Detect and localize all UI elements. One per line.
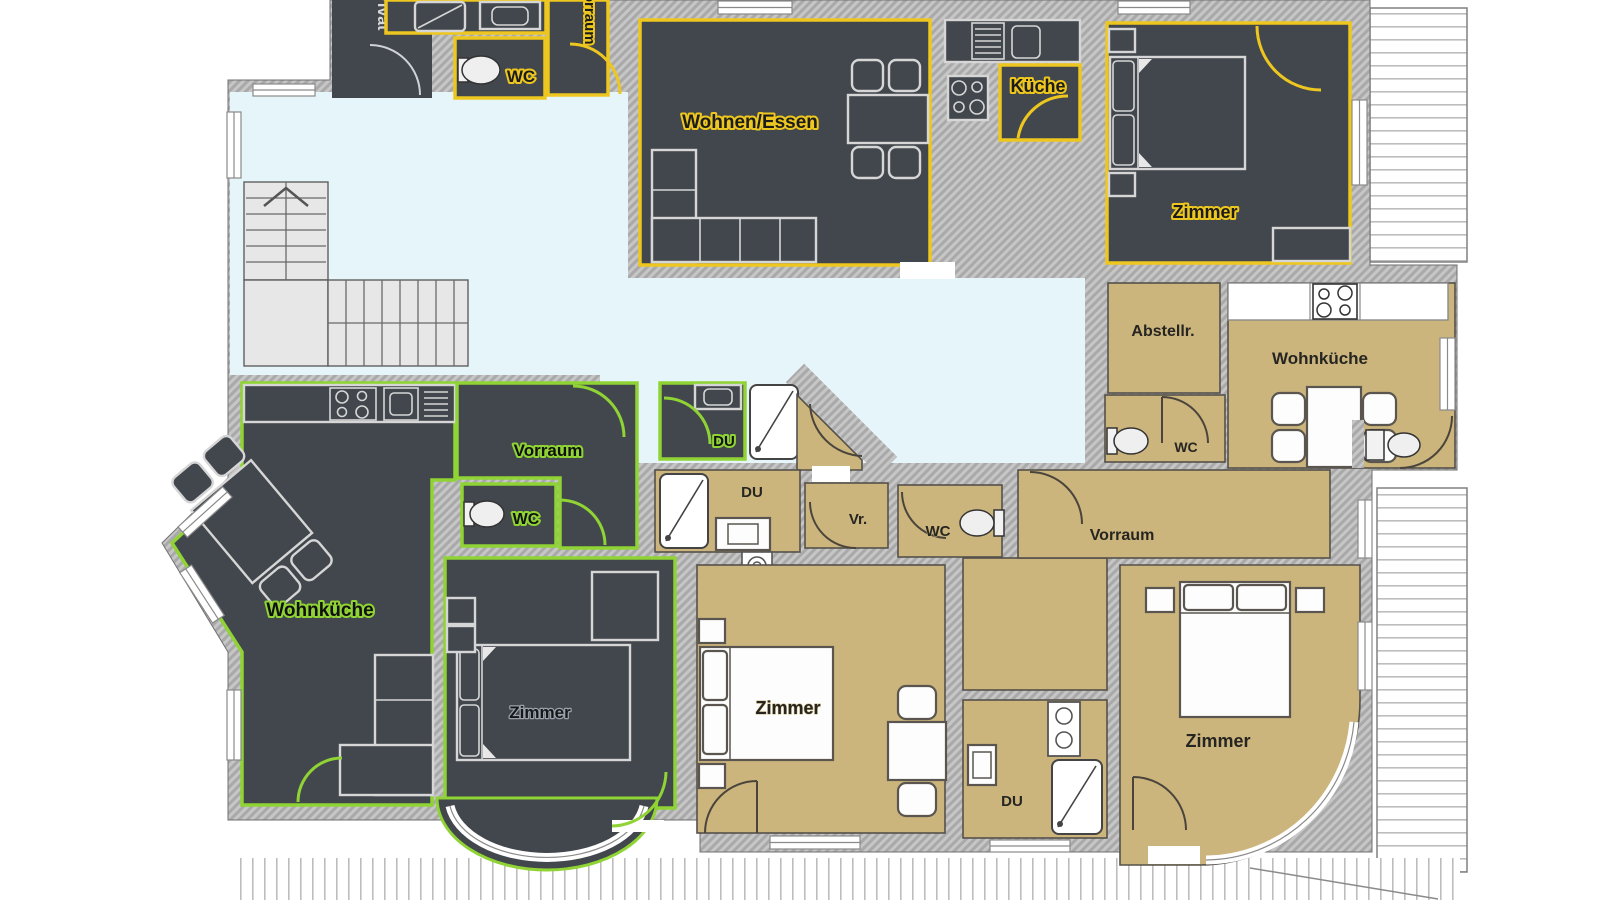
window [990, 840, 1070, 852]
shower [1052, 760, 1102, 834]
room-zimmer-top: Zimmer [1107, 23, 1350, 263]
window [1118, 1, 1190, 14]
room-label: Wohnküche [266, 600, 373, 621]
door-opening [1148, 846, 1200, 864]
room-label: Vr. [849, 511, 867, 528]
toilet [464, 501, 504, 527]
room-label: DU [741, 484, 763, 501]
wardrobe [592, 572, 658, 640]
room-label: Abstellr. [1131, 323, 1194, 340]
window [1358, 500, 1372, 558]
room-label: Zimmer [755, 698, 820, 718]
bed [1180, 582, 1290, 717]
floor-plan-page: Privat WC Vorraum [0, 0, 1600, 900]
appliance [1048, 702, 1080, 756]
door-opening [900, 262, 955, 279]
floor-plan-drawing: Privat WC Vorraum [0, 0, 1600, 900]
room-wohnkueche-right: Wohnküche [1228, 283, 1455, 468]
kitchen-counter [244, 385, 455, 422]
window [253, 84, 315, 96]
window [227, 112, 241, 178]
terrace-bottom [230, 858, 1460, 900]
sink [695, 385, 741, 409]
room-label: Küche [1010, 76, 1065, 96]
room-label: DU [713, 433, 735, 450]
terrace-top-right [1370, 8, 1467, 262]
sink [716, 518, 770, 550]
dishwasher [972, 23, 1004, 59]
kitchen-counter [1228, 283, 1448, 320]
shower [750, 385, 798, 459]
room-label: DU [1001, 793, 1023, 810]
room-wohnen-essen: Wohnen/Essen [640, 20, 930, 265]
room-label: Wohnküche [1272, 349, 1368, 368]
room-label: WC [1174, 439, 1197, 455]
terrace-right [1377, 488, 1467, 872]
room-du-left: DU [660, 383, 798, 459]
stove [1313, 284, 1357, 319]
toilet [458, 56, 500, 84]
room-label: Zimmer [1172, 202, 1237, 222]
room-du-right: DU [963, 700, 1107, 838]
window [718, 1, 792, 14]
window [227, 690, 241, 760]
toilet [1107, 428, 1148, 454]
sink [968, 745, 996, 785]
shower [660, 474, 708, 548]
room-label: Zimmer [509, 703, 571, 722]
room-label: WC [926, 523, 951, 540]
room-wohnkueche-left: Wohnküche [168, 383, 455, 805]
room-zimmer-left: Zimmer [437, 558, 675, 870]
room-label: WC [507, 67, 535, 86]
toilet [960, 510, 1004, 536]
window [1440, 338, 1455, 410]
room-wc-middle: WC [898, 485, 1004, 557]
room-abstellraum: Abstellr. [1108, 283, 1220, 393]
room-label: Vorraum [514, 441, 583, 460]
window [770, 836, 860, 849]
dining-table [848, 60, 928, 178]
door-opening [812, 466, 850, 482]
sink [480, 2, 540, 29]
bed [1110, 57, 1245, 169]
room-vorraum-top: Vorraum [548, 0, 620, 95]
room-zimmer-middle: Zimmer [697, 565, 946, 833]
room-label: Wohnen/Essen [682, 112, 818, 133]
room-label: WC [513, 511, 540, 528]
room-wc-right: WC [1105, 395, 1225, 462]
room-wc-top: WC [455, 38, 545, 98]
window [1358, 622, 1372, 690]
room-label: Zimmer [1185, 731, 1250, 751]
room-label: Vorraum [581, 0, 598, 45]
room-bath-top [386, 0, 546, 33]
stove [948, 76, 988, 120]
room-label: Vorraum [1090, 527, 1155, 544]
window [1352, 100, 1367, 185]
shower [415, 2, 465, 31]
